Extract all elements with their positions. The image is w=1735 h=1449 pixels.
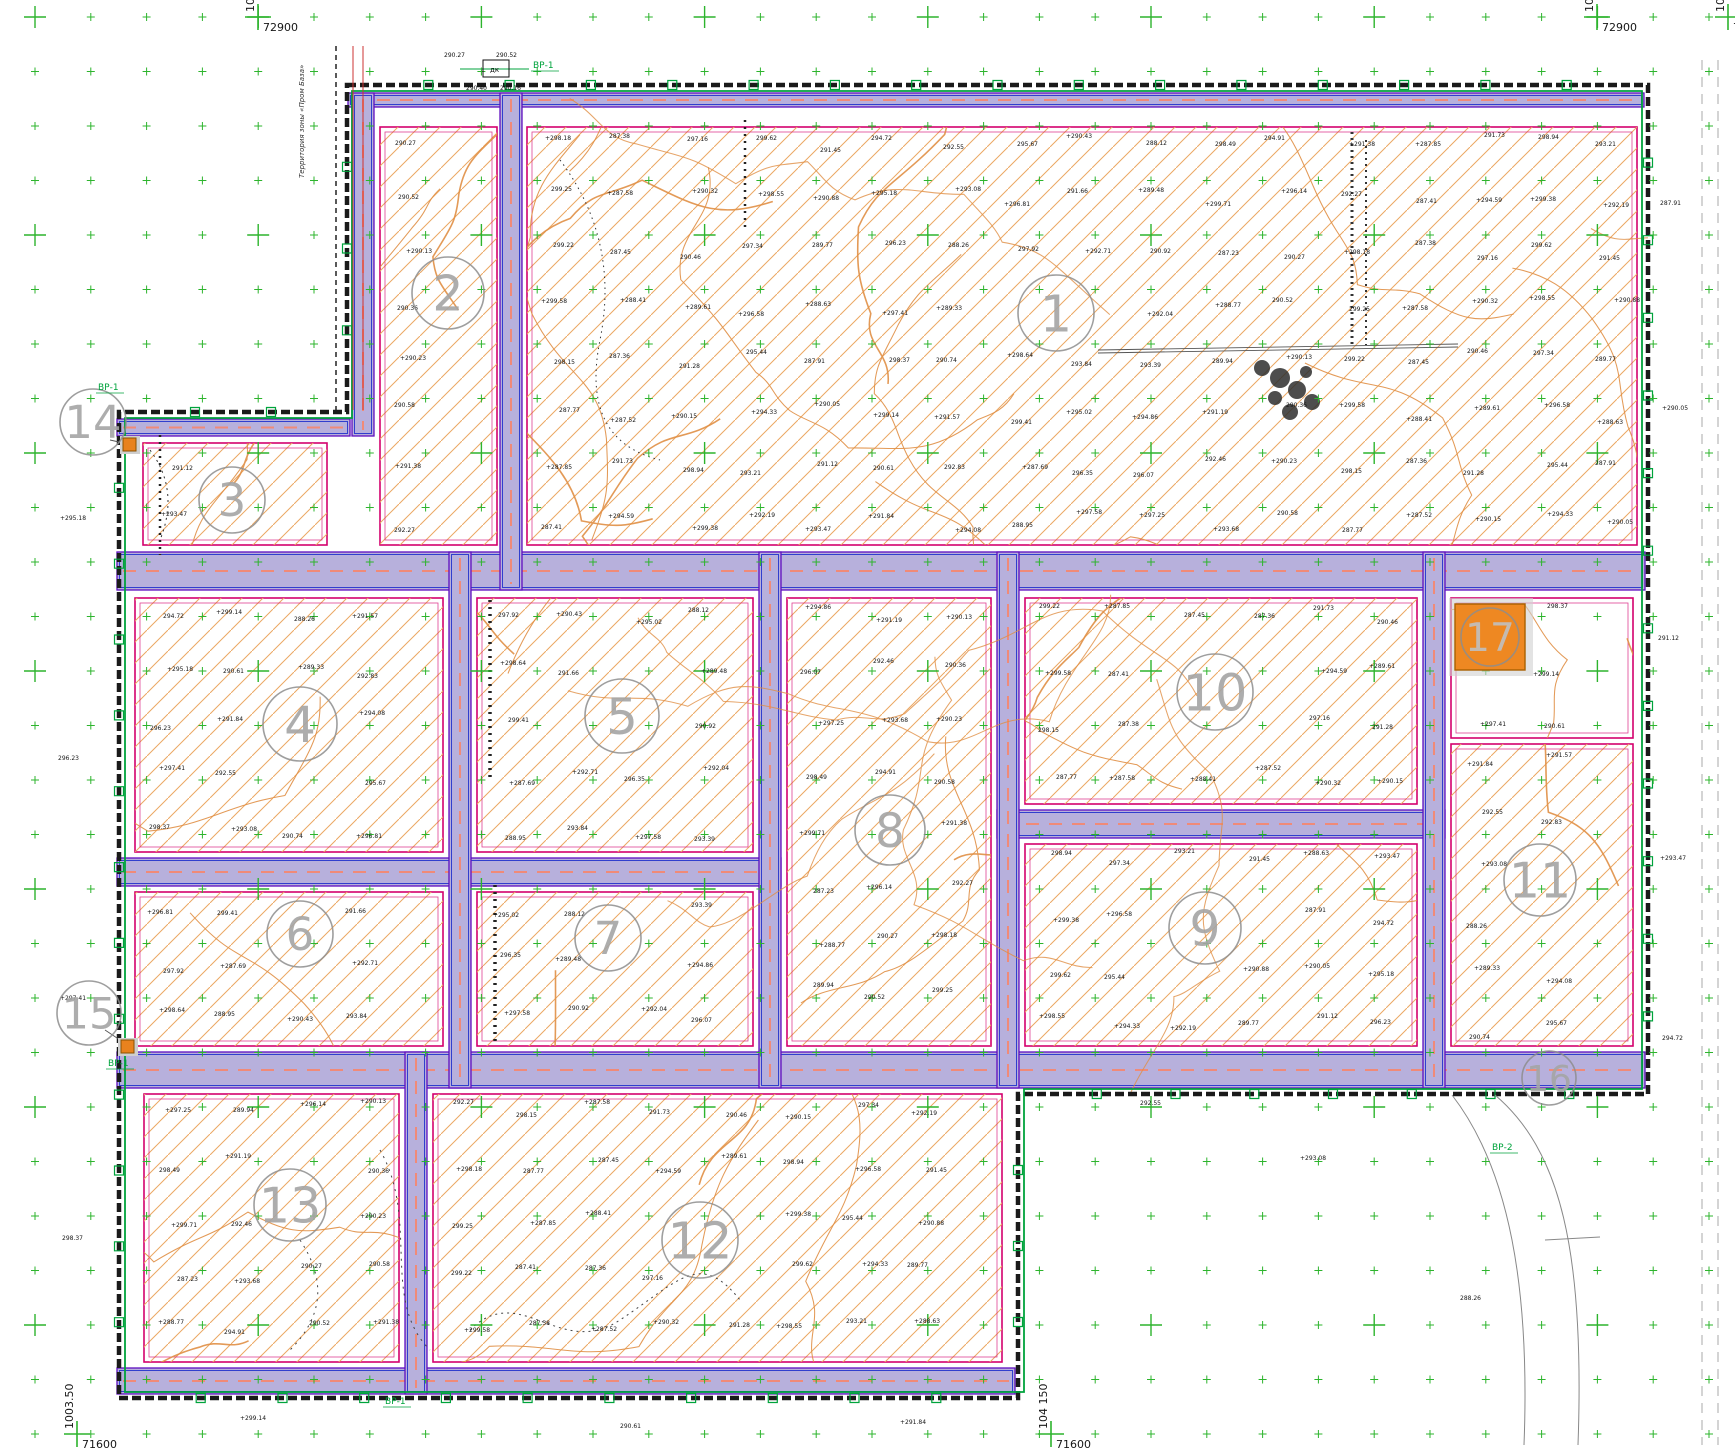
svg-text:296.23: 296.23	[58, 755, 79, 762]
svg-text:299.22: 299.22	[1344, 356, 1365, 363]
svg-text:+297.25: +297.25	[818, 720, 844, 727]
svg-text:+287.85: +287.85	[546, 464, 572, 471]
svg-text:297.92: 297.92	[1018, 246, 1039, 253]
svg-text:+288.63: +288.63	[1597, 419, 1623, 426]
svg-text:+294.59: +294.59	[608, 513, 634, 520]
svg-text:+287.52: +287.52	[610, 417, 636, 424]
svg-text:+298.55: +298.55	[776, 1323, 802, 1330]
svg-text:290.52: 290.52	[496, 52, 517, 59]
svg-text:290.36: 290.36	[945, 662, 966, 669]
svg-text:288.26: 288.26	[1466, 923, 1487, 930]
svg-text:+292.04: +292.04	[641, 1006, 667, 1013]
svg-text:287.41: 287.41	[1416, 198, 1437, 205]
svg-text:+290.13: +290.13	[946, 614, 972, 621]
svg-text:+293.68: +293.68	[1213, 526, 1239, 533]
svg-text:+296.81: +296.81	[356, 833, 382, 840]
svg-text:299.25: 299.25	[932, 987, 953, 994]
svg-text:292.55: 292.55	[1482, 809, 1503, 816]
svg-text:+291.84: +291.84	[1467, 761, 1493, 768]
svg-text:+292.71: +292.71	[572, 769, 598, 776]
svg-text:+293.08: +293.08	[1300, 1155, 1326, 1162]
zone-number: 16	[1526, 1059, 1572, 1100]
survey-marker-icon	[121, 1040, 134, 1053]
svg-text:+290.32: +290.32	[692, 188, 718, 195]
svg-text:292.55: 292.55	[215, 770, 236, 777]
site-plan-canvas[interactable]: 290.27290.52+290.13290.36+290.23290.58+2…	[0, 0, 1735, 1449]
svg-text:+291.19: +291.19	[876, 617, 902, 624]
svg-text:+293.68: +293.68	[882, 717, 908, 724]
svg-text:+298.55: +298.55	[1529, 295, 1555, 302]
svg-text:+296.14: +296.14	[1281, 188, 1307, 195]
grid-coordinate-horizontal: 71600	[1056, 1438, 1091, 1449]
svg-text:295.67: 295.67	[1017, 141, 1038, 148]
svg-text:+289.33: +289.33	[298, 664, 324, 671]
svg-text:287.45: 287.45	[610, 249, 631, 256]
svg-text:292.46: 292.46	[1205, 456, 1226, 463]
svg-text:+299.58: +299.58	[1045, 670, 1071, 677]
zone-number: 5	[606, 688, 638, 746]
svg-text:293.84: 293.84	[1071, 361, 1092, 368]
grid-coordinate-horizontal: 72900	[1602, 21, 1637, 34]
svg-text:+289.33: +289.33	[936, 305, 962, 312]
svg-text:293.21: 293.21	[846, 1318, 867, 1325]
svg-text:+299.58: +299.58	[464, 1327, 490, 1334]
svg-text:+295.18: +295.18	[167, 666, 193, 673]
svg-text:298.37: 298.37	[62, 1235, 83, 1242]
svg-text:299.62: 299.62	[792, 1261, 813, 1268]
svg-text:+287.52: +287.52	[591, 1326, 617, 1333]
svg-text:291.12: 291.12	[1317, 1013, 1338, 1020]
svg-text:295.44: 295.44	[1547, 462, 1568, 469]
svg-text:297.16: 297.16	[1309, 715, 1330, 722]
svg-text:+292.19: +292.19	[1603, 202, 1629, 209]
svg-text:299.25: 299.25	[452, 1223, 473, 1230]
svg-text:291.45: 291.45	[926, 1167, 947, 1174]
svg-text:299.41: 299.41	[217, 910, 238, 917]
svg-text:291.66: 291.66	[345, 908, 366, 915]
svg-text:290.52: 290.52	[864, 994, 885, 1001]
svg-text:293.21: 293.21	[1595, 141, 1616, 148]
svg-text:290.46: 290.46	[726, 1112, 747, 1119]
svg-text:291.66: 291.66	[1067, 188, 1088, 195]
svg-text:+287.69: +287.69	[509, 780, 535, 787]
svg-text:+297.58: +297.58	[1076, 509, 1102, 516]
svg-text:291.73: 291.73	[612, 458, 633, 465]
grid-coordinate-vertical: 1046.50	[1583, 0, 1596, 12]
svg-text:293.39: 293.39	[694, 836, 715, 843]
svg-text:291.28: 291.28	[1463, 470, 1484, 477]
svg-text:296.23: 296.23	[1370, 1019, 1391, 1026]
svg-text:287.45: 287.45	[1408, 359, 1429, 366]
svg-text:+291.57: +291.57	[934, 414, 960, 421]
svg-text:+299.14: +299.14	[873, 412, 899, 419]
svg-text:292.83: 292.83	[944, 464, 965, 471]
svg-text:+296.81: +296.81	[147, 909, 173, 916]
svg-text:+299.14: +299.14	[1533, 671, 1559, 678]
svg-text:+292.71: +292.71	[352, 960, 378, 967]
svg-text:292.55: 292.55	[1140, 1100, 1161, 1107]
svg-text:287.41: 287.41	[515, 1264, 536, 1271]
svg-text:+290.15: +290.15	[671, 413, 697, 420]
svg-text:296.35: 296.35	[500, 952, 521, 959]
svg-text:+290.23: +290.23	[400, 355, 426, 362]
svg-text:+287.58: +287.58	[607, 190, 633, 197]
svg-text:298.15: 298.15	[554, 359, 575, 366]
svg-text:298.94: 298.94	[1538, 134, 1559, 141]
svg-text:290.52: 290.52	[309, 1320, 330, 1327]
svg-text:+294.59: +294.59	[1476, 197, 1502, 204]
svg-text:291.12: 291.12	[1658, 635, 1679, 642]
svg-text:288.12: 288.12	[1146, 140, 1167, 147]
svg-text:292.27: 292.27	[952, 880, 973, 887]
svg-text:+292.19: +292.19	[749, 512, 775, 519]
svg-text:298.94: 298.94	[683, 467, 704, 474]
zone-number: 4	[284, 696, 316, 754]
svg-text:+289.61: +289.61	[1369, 663, 1395, 670]
svg-text:294.72: 294.72	[1662, 1035, 1683, 1042]
svg-text:+294.08: +294.08	[359, 710, 385, 717]
svg-text:+296.58: +296.58	[855, 1166, 881, 1173]
svg-text:299.62: 299.62	[756, 135, 777, 142]
svg-text:290.92: 290.92	[568, 1005, 589, 1012]
zone-number: 11	[1509, 853, 1571, 910]
svg-text:296.07: 296.07	[691, 1017, 712, 1024]
svg-text:294.91: 294.91	[224, 1329, 245, 1336]
svg-text:+298.64: +298.64	[159, 1007, 185, 1014]
svg-text:+293.47: +293.47	[805, 526, 831, 533]
svg-text:+290.88: +290.88	[918, 1220, 944, 1227]
svg-text:290.58: 290.58	[394, 402, 415, 409]
svg-text:+290.13: +290.13	[1286, 354, 1312, 361]
svg-text:288.95: 288.95	[214, 1011, 235, 1018]
svg-text:291.73: 291.73	[1313, 605, 1334, 612]
zone-number: 1	[1040, 285, 1072, 344]
svg-text:299.22: 299.22	[553, 242, 574, 249]
svg-text:+293.08: +293.08	[955, 186, 981, 193]
grid-coordinate-vertical: 1047.50	[1714, 0, 1727, 12]
grid-coordinate-vertical: 104 150	[1037, 1384, 1050, 1430]
svg-text:296.35: 296.35	[1072, 470, 1093, 477]
svg-text:298.49: 298.49	[1215, 141, 1236, 148]
zone-number: 17	[1465, 616, 1515, 661]
svg-text:+296.58: +296.58	[738, 311, 764, 318]
svg-text:+288.77: +288.77	[158, 1319, 184, 1326]
svg-text:+287.58: +287.58	[1109, 775, 1135, 782]
svg-text:295.67: 295.67	[365, 780, 386, 787]
svg-text:298.37: 298.37	[1547, 603, 1568, 610]
svg-text:+288.41: +288.41	[1406, 416, 1432, 423]
svg-text:287.91: 287.91	[804, 358, 825, 365]
svg-text:+298.64: +298.64	[1007, 352, 1033, 359]
svg-text:293.21: 293.21	[1174, 848, 1195, 855]
svg-text:+295.18: +295.18	[1368, 971, 1394, 978]
svg-text:+291.84: +291.84	[868, 513, 894, 520]
svg-text:+294.86: +294.86	[805, 604, 831, 611]
svg-text:295.67: 295.67	[1546, 1020, 1567, 1027]
svg-text:287.36: 287.36	[585, 1265, 606, 1272]
svg-text:295.44: 295.44	[842, 1215, 863, 1222]
svg-text:290.58: 290.58	[1277, 510, 1298, 517]
svg-text:290.52: 290.52	[1272, 297, 1293, 304]
svg-text:299.25: 299.25	[551, 186, 572, 193]
svg-text:287.36: 287.36	[1254, 613, 1275, 620]
svg-text:288.95: 288.95	[505, 835, 526, 842]
svg-text:+293.47: +293.47	[161, 511, 187, 518]
svg-text:+289.61: +289.61	[1474, 405, 1500, 412]
svg-text:+290.32: +290.32	[1472, 298, 1498, 305]
svg-text:+290.32: +290.32	[653, 1319, 679, 1326]
svg-text:291.45: 291.45	[1599, 255, 1620, 262]
zone-number: 12	[668, 1212, 733, 1271]
svg-text:297.16: 297.16	[1477, 255, 1498, 262]
svg-text:290.40: 290.40	[466, 85, 487, 92]
svg-text:+294.59: +294.59	[655, 1168, 681, 1175]
svg-text:+290.23: +290.23	[936, 716, 962, 723]
svg-text:290.16: 290.16	[500, 85, 521, 92]
svg-text:+291.38: +291.38	[1349, 141, 1375, 148]
svg-text:293.39: 293.39	[1140, 362, 1161, 369]
grid-coordinate-vertical: 103450	[244, 0, 257, 12]
svg-text:+297.58: +297.58	[635, 834, 661, 841]
zone-number: 15	[62, 989, 117, 1039]
svg-text:289.77: 289.77	[812, 242, 833, 249]
svg-text:+291.19: +291.19	[225, 1153, 251, 1160]
svg-text:+298.18: +298.18	[456, 1166, 482, 1173]
svg-text:297.92: 297.92	[163, 968, 184, 975]
svg-text:287.91: 287.91	[1305, 907, 1326, 914]
zone-number: 13	[259, 1178, 321, 1235]
svg-text:+290.23: +290.23	[360, 1213, 386, 1220]
svg-text:295.44: 295.44	[1104, 974, 1125, 981]
svg-text:298.15: 298.15	[1038, 727, 1059, 734]
svg-text:292.27: 292.27	[453, 1099, 474, 1106]
svg-text:+290.88: +290.88	[1614, 297, 1640, 304]
svg-text:+292.04: +292.04	[1147, 311, 1173, 318]
svg-text:294.72: 294.72	[163, 613, 184, 620]
svg-text:290.27: 290.27	[1284, 254, 1305, 261]
svg-text:287.45: 287.45	[1184, 612, 1205, 619]
svg-text:+289.61: +289.61	[721, 1153, 747, 1160]
svg-text:291.28: 291.28	[679, 363, 700, 370]
svg-text:292.27: 292.27	[1341, 191, 1362, 198]
svg-text:+295.02: +295.02	[493, 912, 519, 919]
svg-text:+291.38: +291.38	[941, 820, 967, 827]
zone-number: 3	[218, 474, 247, 527]
svg-text:296.23: 296.23	[150, 725, 171, 732]
svg-text:+299.38: +299.38	[1530, 196, 1556, 203]
svg-text:+288.63: +288.63	[1303, 850, 1329, 857]
svg-text:292.46: 292.46	[231, 1221, 252, 1228]
svg-text:290.92: 290.92	[695, 723, 716, 730]
svg-text:+291.84: +291.84	[217, 716, 243, 723]
svg-text:+288.63: +288.63	[914, 1318, 940, 1325]
svg-text:297.34: 297.34	[1533, 350, 1554, 357]
svg-text:+299.14: +299.14	[216, 609, 242, 616]
svg-text:290.27: 290.27	[395, 140, 416, 147]
svg-text:289.77: 289.77	[1595, 356, 1616, 363]
svg-text:287.91: 287.91	[1660, 200, 1681, 207]
svg-text:297.34: 297.34	[1109, 860, 1130, 867]
svg-text:287.45: 287.45	[598, 1157, 619, 1164]
svg-text:293.84: 293.84	[346, 1013, 367, 1020]
svg-text:289.94: 289.94	[1212, 358, 1233, 365]
zone-marker-11[interactable]: 11	[1504, 844, 1576, 916]
survey-point-label: ВР-1	[385, 1397, 406, 1407]
svg-text:+294.08: +294.08	[1546, 978, 1572, 985]
svg-text:292.27: 292.27	[394, 527, 415, 534]
svg-text:+291.38: +291.38	[373, 1319, 399, 1326]
svg-text:299.22: 299.22	[451, 1270, 472, 1277]
svg-text:292.83: 292.83	[1541, 819, 1562, 826]
territory-note: Территория зоны «Пром База»	[298, 65, 306, 178]
grid-coordinate-horizontal: 71600	[82, 1438, 117, 1449]
svg-text:+288.41: +288.41	[620, 297, 646, 304]
svg-text:+299.38: +299.38	[1053, 917, 1079, 924]
svg-text:+294.33: +294.33	[751, 409, 777, 416]
svg-text:289.94: 289.94	[813, 982, 834, 989]
svg-text:+287.58: +287.58	[584, 1099, 610, 1106]
svg-text:+288.77: +288.77	[819, 942, 845, 949]
zone-number: 10	[1183, 664, 1248, 723]
svg-text:290.27: 290.27	[301, 1263, 322, 1270]
svg-text:290.46: 290.46	[1377, 619, 1398, 626]
svg-text:+287.52: +287.52	[1406, 512, 1432, 519]
svg-text:+291.57: +291.57	[352, 613, 378, 620]
svg-text:287.36: 287.36	[609, 353, 630, 360]
svg-text:+287.69: +287.69	[1022, 464, 1048, 471]
svg-text:+288.41: +288.41	[1190, 776, 1216, 783]
svg-text:+293.08: +293.08	[1481, 861, 1507, 868]
grid-coordinate-vertical: 1003.50	[63, 1384, 76, 1430]
svg-text:290.74: 290.74	[1469, 1034, 1490, 1041]
svg-text:291.12: 291.12	[817, 461, 838, 468]
svg-text:290.36: 290.36	[368, 1168, 389, 1175]
svg-text:290.74: 290.74	[282, 833, 303, 840]
svg-text:+290.43: +290.43	[556, 611, 582, 618]
survey-point-label: ВР-2	[1492, 1143, 1513, 1153]
survey-point-label: ВР-1	[98, 383, 119, 393]
svg-text:+294.59: +294.59	[1321, 668, 1347, 675]
svg-text:293.39: 293.39	[691, 902, 712, 909]
svg-text:297.16: 297.16	[687, 136, 708, 143]
svg-text:288.12: 288.12	[688, 607, 709, 614]
zone-marker-12[interactable]: 12	[662, 1202, 738, 1278]
svg-text:290.27: 290.27	[444, 52, 465, 59]
svg-text:296.23: 296.23	[885, 240, 906, 247]
svg-text:+297.25: +297.25	[1139, 512, 1165, 519]
svg-text:298.49: 298.49	[159, 1167, 180, 1174]
svg-text:+298.55: +298.55	[758, 191, 784, 198]
svg-text:288.26: 288.26	[294, 616, 315, 623]
svg-text:+290.13: +290.13	[360, 1098, 386, 1105]
svg-text:287.38: 287.38	[609, 133, 630, 140]
svg-text:+295.18: +295.18	[60, 515, 86, 522]
svg-text:291.28: 291.28	[729, 1322, 750, 1329]
svg-text:+293.08: +293.08	[231, 826, 257, 833]
svg-text:+298.18: +298.18	[931, 932, 957, 939]
svg-text:+290.43: +290.43	[1066, 133, 1092, 140]
survey-point-label: ВР-1	[108, 1059, 129, 1069]
svg-text:+291.38: +291.38	[395, 463, 421, 470]
svg-text:290.61: 290.61	[223, 668, 244, 675]
svg-text:+290.43: +290.43	[287, 1016, 313, 1023]
svg-text:298.15: 298.15	[516, 1112, 537, 1119]
svg-text:+293.47: +293.47	[1660, 855, 1686, 862]
survey-point-label: ВР-1	[533, 61, 554, 71]
svg-text:291.45: 291.45	[820, 147, 841, 154]
svg-text:+298.18: +298.18	[1344, 249, 1370, 256]
svg-text:+294.33: +294.33	[862, 1261, 888, 1268]
svg-text:+287.52: +287.52	[1255, 765, 1281, 772]
svg-text:+299.14: +299.14	[240, 1415, 266, 1422]
survey-marker-icon	[123, 438, 136, 451]
svg-text:+296.81: +296.81	[1004, 201, 1030, 208]
svg-text:292.83: 292.83	[357, 673, 378, 680]
svg-text:290.61: 290.61	[873, 465, 894, 472]
svg-text:+298.55: +298.55	[1039, 1013, 1065, 1020]
grid-coordinate-horizontal: 72900	[263, 21, 298, 34]
svg-text:+290.23: +290.23	[1271, 458, 1297, 465]
svg-text:+298.18: +298.18	[545, 135, 571, 142]
zone-marker-17[interactable]: 17	[1449, 598, 1533, 676]
svg-text:287.23: 287.23	[813, 888, 834, 895]
svg-text:+296.58: +296.58	[1544, 402, 1570, 409]
svg-text:296.07: 296.07	[1133, 472, 1154, 479]
svg-text:287.77: 287.77	[1056, 774, 1077, 781]
svg-text:290.61: 290.61	[1544, 723, 1565, 730]
svg-text:291.73: 291.73	[649, 1109, 670, 1116]
svg-text:+289.48: +289.48	[555, 956, 581, 963]
svg-text:298.49: 298.49	[806, 774, 827, 781]
svg-text:289.77: 289.77	[1238, 1020, 1259, 1027]
svg-text:288.26: 288.26	[948, 242, 969, 249]
zone-number: 6	[286, 908, 315, 961]
svg-text:299.62: 299.62	[1531, 242, 1552, 249]
svg-text:291.12: 291.12	[172, 465, 193, 472]
svg-text:287.38: 287.38	[1118, 721, 1139, 728]
svg-text:289.94: 289.94	[233, 1107, 254, 1114]
svg-text:+299.58: +299.58	[1339, 402, 1365, 409]
svg-text:+290.15: +290.15	[1475, 516, 1501, 523]
svg-text:+292.19: +292.19	[911, 1110, 937, 1117]
svg-text:294.91: 294.91	[1264, 135, 1285, 142]
svg-text:287.23: 287.23	[177, 1276, 198, 1283]
svg-text:+299.71: +299.71	[1205, 201, 1231, 208]
svg-text:292.46: 292.46	[873, 658, 894, 665]
zone-marker-16[interactable]: 16	[1522, 1051, 1576, 1105]
svg-text:+299.71: +299.71	[171, 1222, 197, 1229]
svg-text:+287.85: +287.85	[1104, 603, 1130, 610]
svg-text:287.38: 287.38	[529, 1320, 550, 1327]
zone-marker-10[interactable]: 10	[1177, 654, 1253, 730]
svg-text:+294.08: +294.08	[955, 527, 981, 534]
zone-number: 8	[875, 804, 905, 859]
svg-text:+296.14: +296.14	[866, 884, 892, 891]
svg-text:+297.25: +297.25	[165, 1107, 191, 1114]
svg-text:+290.88: +290.88	[813, 195, 839, 202]
svg-text:+291.57: +291.57	[1546, 752, 1572, 759]
svg-text:+299.58: +299.58	[541, 298, 567, 305]
svg-text:+288.77: +288.77	[1215, 302, 1241, 309]
zone-marker-13[interactable]: 13	[254, 1169, 326, 1241]
zone-number: 7	[594, 912, 623, 965]
svg-text:298.37: 298.37	[889, 357, 910, 364]
svg-text:+290.05: +290.05	[814, 401, 840, 408]
svg-text:287.77: 287.77	[523, 1168, 544, 1175]
svg-text:291.45: 291.45	[1249, 856, 1270, 863]
svg-text:+290.05: +290.05	[1304, 963, 1330, 970]
topographic-map-svg: 290.27290.52+290.13290.36+290.23290.58+2…	[0, 0, 1735, 1449]
